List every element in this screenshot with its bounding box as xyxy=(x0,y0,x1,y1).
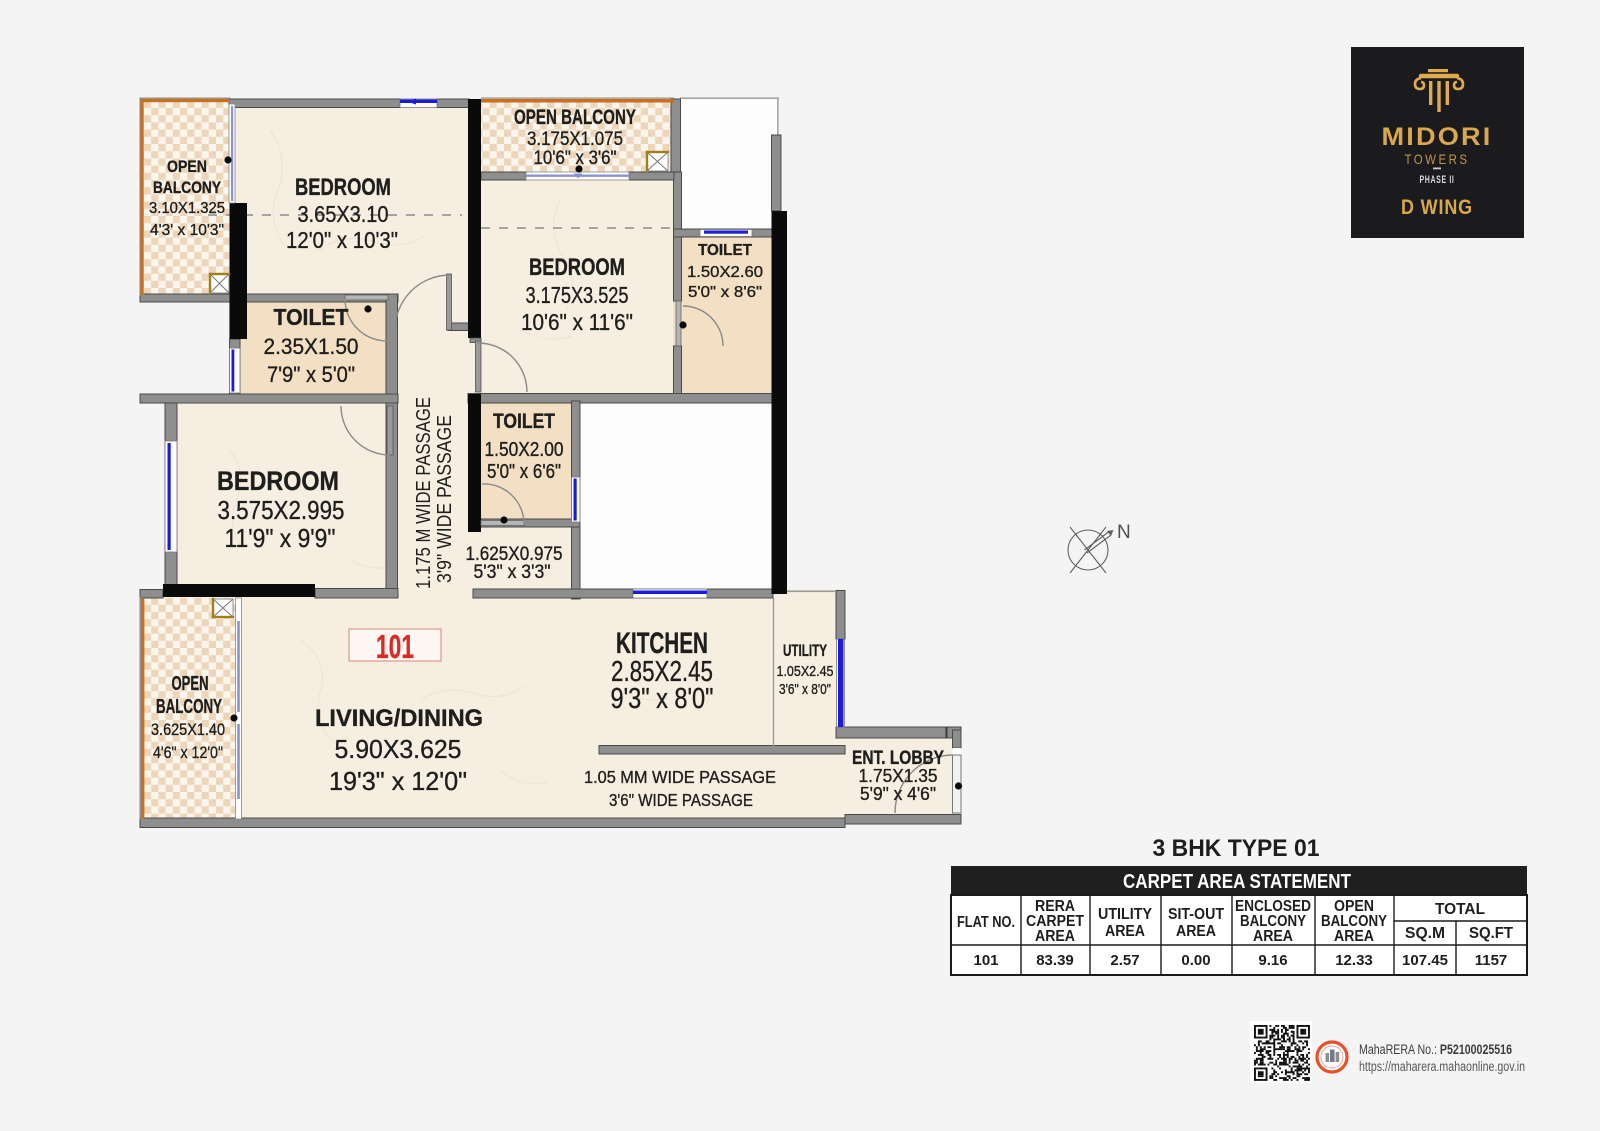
svg-text:4'6" x 12'0": 4'6" x 12'0" xyxy=(153,743,223,762)
svg-text:AREA: AREA xyxy=(1334,928,1374,945)
svg-text:BEDROOM: BEDROOM xyxy=(529,254,625,281)
svg-text:1.175 M WIDE PASSAGE: 1.175 M WIDE PASSAGE xyxy=(413,397,435,589)
svg-text:OPEN: OPEN xyxy=(167,157,207,176)
svg-text:101: 101 xyxy=(973,952,998,969)
svg-text:10'6" x 3'6": 10'6" x 3'6" xyxy=(534,148,617,169)
svg-text:5'3" x 3'3": 5'3" x 3'3" xyxy=(474,562,551,583)
svg-text:1.05 MM WIDE PASSAGE: 1.05 MM WIDE PASSAGE xyxy=(584,767,776,787)
svg-text:19'3" x 12'0": 19'3" x 12'0" xyxy=(329,766,467,796)
svg-text:BEDROOM: BEDROOM xyxy=(217,466,339,496)
svg-text:TOILET: TOILET xyxy=(493,410,555,433)
svg-text:3'6" x 8'0": 3'6" x 8'0" xyxy=(779,681,831,698)
svg-text:10'6" x 11'6": 10'6" x 11'6" xyxy=(521,309,633,335)
svg-text:D WING: D WING xyxy=(1401,196,1473,219)
svg-text:FLAT NO.: FLAT NO. xyxy=(957,914,1015,931)
svg-text:BALCONY: BALCONY xyxy=(156,696,222,718)
svg-text:101: 101 xyxy=(376,628,414,665)
svg-text:AREA: AREA xyxy=(1176,923,1216,940)
svg-text:SQ.M: SQ.M xyxy=(1405,925,1445,942)
svg-text:N: N xyxy=(1117,522,1131,543)
svg-text:5'9" x 4'6": 5'9" x 4'6" xyxy=(860,784,936,804)
svg-text:TOTAL: TOTAL xyxy=(1435,901,1485,918)
svg-text:7'9" x 5'0": 7'9" x 5'0" xyxy=(267,362,355,387)
svg-text:5'0" x 6'6": 5'0" x 6'6" xyxy=(487,461,561,483)
svg-text:https://maharera.mahaonline.go: https://maharera.mahaonline.gov.in xyxy=(1359,1059,1525,1074)
svg-text:TOILET: TOILET xyxy=(698,242,752,259)
svg-text:1.50X2.60: 1.50X2.60 xyxy=(687,264,763,281)
svg-text:CARPET AREA STATEMENT: CARPET AREA STATEMENT xyxy=(1123,871,1351,893)
svg-text:1.75X1.35: 1.75X1.35 xyxy=(859,766,938,786)
svg-text:BALCONY: BALCONY xyxy=(153,178,222,197)
svg-text:PHASE II: PHASE II xyxy=(1420,174,1455,186)
svg-text:TOWERS: TOWERS xyxy=(1405,151,1470,167)
svg-text:4'3' x 10'3": 4'3' x 10'3" xyxy=(150,222,224,239)
svg-text:5.90X3.625: 5.90X3.625 xyxy=(335,734,462,764)
svg-text:3'9" WIDE PASSAGE: 3'9" WIDE PASSAGE xyxy=(434,415,456,583)
svg-text:9'3" x 8'0": 9'3" x 8'0" xyxy=(611,683,714,715)
svg-text:1.05X2.45: 1.05X2.45 xyxy=(777,663,834,680)
svg-text:MIDORI: MIDORI xyxy=(1382,123,1493,151)
svg-text:9.16: 9.16 xyxy=(1258,952,1287,969)
svg-text:LIVING/DINING: LIVING/DINING xyxy=(315,705,483,732)
svg-text:UTILITY: UTILITY xyxy=(783,641,827,660)
svg-text:AREA: AREA xyxy=(1035,928,1075,945)
svg-text:3.175X1.075: 3.175X1.075 xyxy=(527,129,623,150)
svg-text:AREA: AREA xyxy=(1105,923,1145,940)
svg-text:12.33: 12.33 xyxy=(1335,952,1373,969)
svg-text:SIT-OUT: SIT-OUT xyxy=(1168,906,1224,923)
svg-text:SQ.FT: SQ.FT xyxy=(1469,925,1513,942)
svg-text:1.50X2.00: 1.50X2.00 xyxy=(485,439,564,461)
svg-text:3.575X2.995: 3.575X2.995 xyxy=(218,495,345,525)
svg-text:83.39: 83.39 xyxy=(1036,952,1074,969)
svg-text:2.57: 2.57 xyxy=(1110,952,1139,969)
svg-text:1157: 1157 xyxy=(1475,952,1508,969)
svg-text:2.35X1.50: 2.35X1.50 xyxy=(264,334,359,359)
svg-text:UTILITY: UTILITY xyxy=(1098,906,1152,923)
svg-text:5'0" x 8'6": 5'0" x 8'6" xyxy=(688,284,762,301)
svg-text:OPEN: OPEN xyxy=(172,673,209,695)
svg-text:3.65X3.10: 3.65X3.10 xyxy=(298,201,389,227)
svg-text:MahaRERA No.: P52100025516: MahaRERA No.: P52100025516 xyxy=(1359,1042,1512,1057)
svg-text:3.10X1.325: 3.10X1.325 xyxy=(149,200,225,217)
svg-text:12'0" x 10'3": 12'0" x 10'3" xyxy=(286,227,398,253)
svg-text:107.45: 107.45 xyxy=(1402,952,1448,969)
svg-text:AREA: AREA xyxy=(1253,928,1293,945)
svg-text:11'9" x 9'9": 11'9" x 9'9" xyxy=(225,523,336,553)
svg-text:3 BHK TYPE 01: 3 BHK TYPE 01 xyxy=(1153,835,1320,862)
svg-text:OPEN BALCONY: OPEN BALCONY xyxy=(514,106,636,129)
svg-text:3.625X1.40: 3.625X1.40 xyxy=(151,720,225,739)
svg-text:BEDROOM: BEDROOM xyxy=(295,174,391,201)
svg-text:0.00: 0.00 xyxy=(1181,952,1210,969)
svg-text:3'6" WIDE PASSAGE: 3'6" WIDE PASSAGE xyxy=(609,790,753,810)
svg-text:TOILET: TOILET xyxy=(274,304,349,330)
svg-text:3.175X3.525: 3.175X3.525 xyxy=(526,282,629,308)
